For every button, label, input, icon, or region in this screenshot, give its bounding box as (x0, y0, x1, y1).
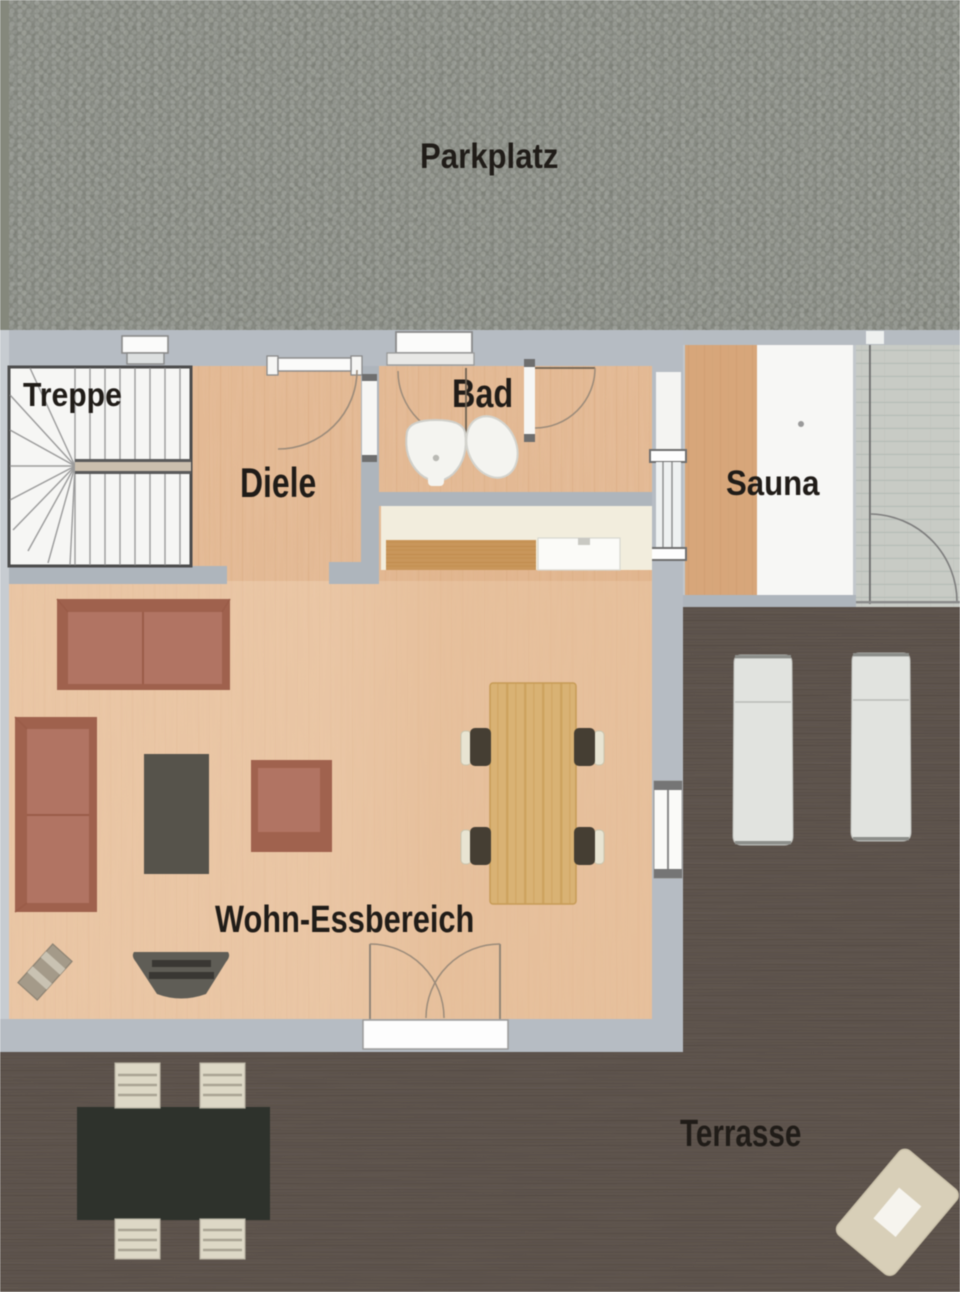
svg-text:Terrasse: Terrasse (680, 1113, 801, 1155)
svg-text:Bad: Bad (452, 371, 513, 416)
svg-text:Wohn-Essbereich: Wohn-Essbereich (215, 899, 474, 941)
svg-text:Parkplatz: Parkplatz (420, 137, 558, 176)
svg-text:Sauna: Sauna (726, 464, 820, 503)
svg-text:Diele: Diele (240, 459, 316, 506)
svg-text:Treppe: Treppe (23, 376, 122, 414)
